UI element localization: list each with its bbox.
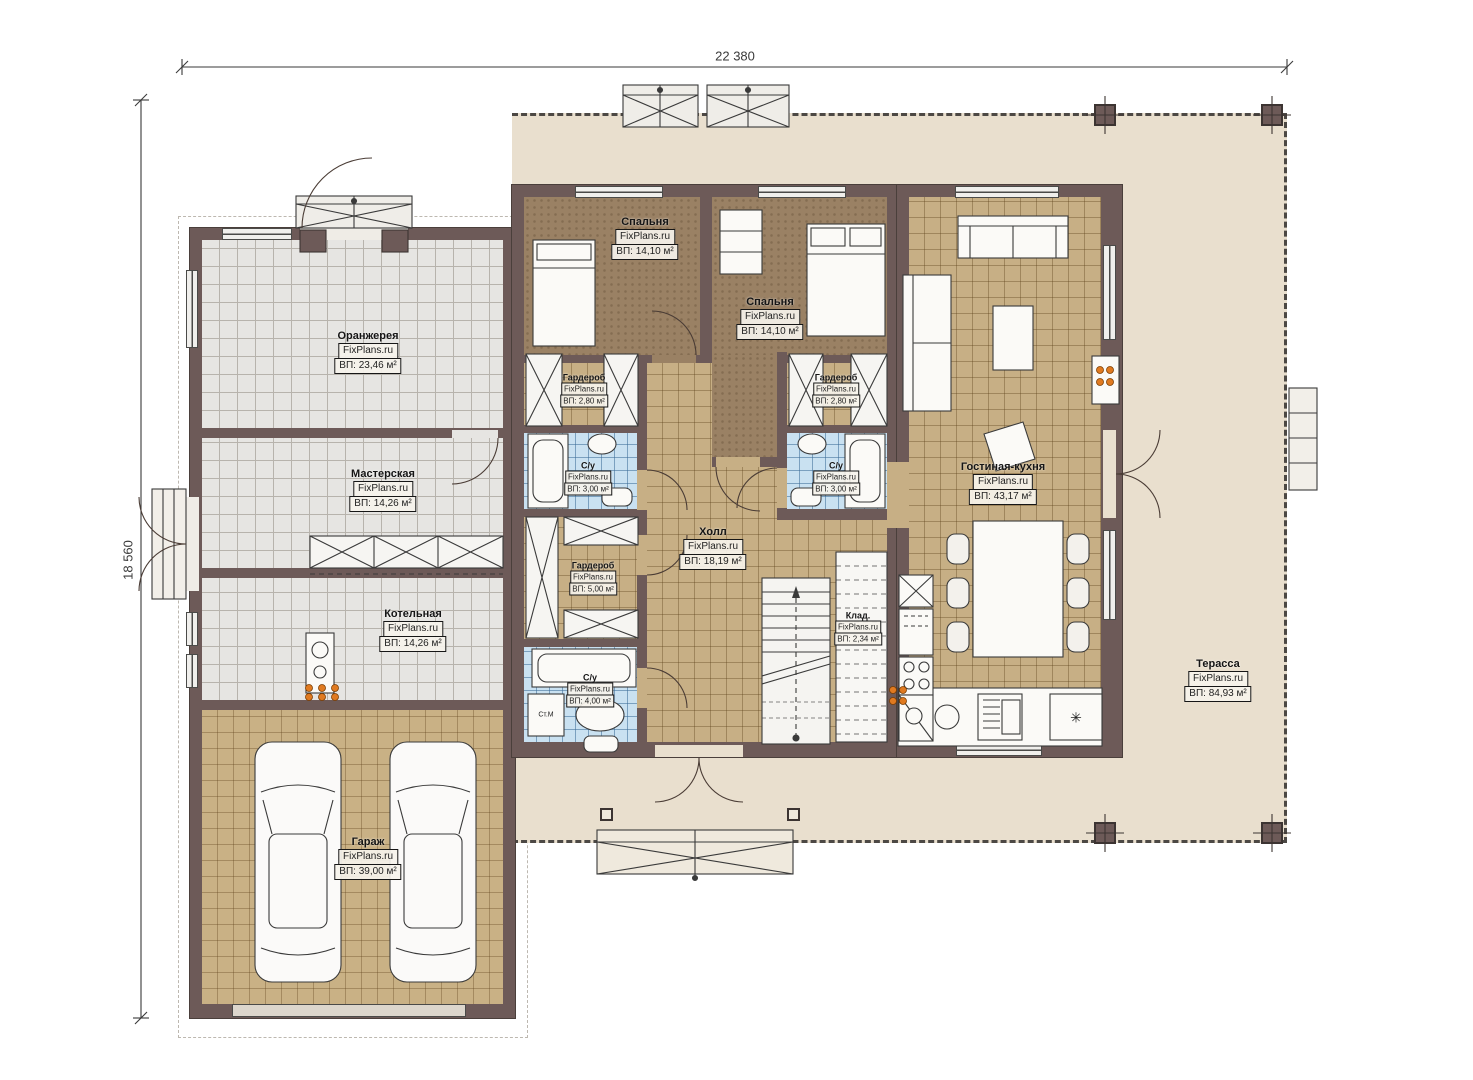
room-label-garage: Гараж FixPlans.ru ВП: 39,00 м² bbox=[334, 836, 401, 880]
window bbox=[186, 270, 198, 348]
room-area: ВП: 14,26 м² bbox=[379, 636, 446, 652]
room-label-living: Гостиная-кухня FixPlans.ru ВП: 43,17 м² bbox=[961, 461, 1045, 505]
room-label-hall: Холл FixPlans.ru ВП: 18,19 м² bbox=[679, 526, 746, 570]
watermark: FixPlans.ru bbox=[353, 481, 413, 497]
watermark: FixPlans.ru bbox=[683, 539, 743, 555]
room-label-bath2: С/у FixPlans.ru ВП: 3,00 м² bbox=[812, 461, 860, 496]
wall bbox=[524, 509, 637, 517]
terrace-column bbox=[1261, 822, 1283, 844]
hall-living-passage bbox=[887, 462, 909, 528]
watermark: FixPlans.ru bbox=[338, 343, 398, 359]
window bbox=[955, 186, 1059, 198]
terrace-column bbox=[1094, 822, 1116, 844]
bedroom2-floor-ext bbox=[712, 355, 777, 457]
window bbox=[186, 612, 198, 646]
room-area: ВП: 2,80 м² bbox=[560, 395, 608, 408]
room-area: ВП: 4,00 м² bbox=[566, 695, 614, 708]
window bbox=[1103, 530, 1116, 620]
wall bbox=[787, 425, 887, 433]
boiler-floor bbox=[202, 578, 503, 700]
watermark: FixPlans.ru bbox=[740, 309, 800, 325]
door-gap bbox=[637, 668, 647, 708]
wall bbox=[524, 425, 637, 433]
room-label-workshop: Мастерская FixPlans.ru ВП: 14,26 м² bbox=[349, 468, 416, 512]
room-area: ВП: 14,26 м² bbox=[349, 496, 416, 512]
room-label-storage: Клад. FixPlans.ru ВП: 2,34 м² bbox=[834, 611, 882, 646]
window bbox=[758, 186, 846, 198]
window bbox=[575, 186, 663, 198]
room-area: ВП: 39,00 м² bbox=[334, 864, 401, 880]
room-area: ВП: 5,00 м² bbox=[569, 583, 617, 596]
window bbox=[1103, 245, 1116, 340]
room-area: ВП: 2,34 м² bbox=[834, 633, 882, 646]
fridge-icon: ✳ bbox=[1070, 710, 1082, 727]
orangery-entrance-gap bbox=[300, 228, 408, 240]
door-gap bbox=[716, 457, 760, 467]
main-entrance-gap bbox=[655, 745, 743, 757]
wall bbox=[777, 509, 887, 520]
room-area: ВП: 23,46 м² bbox=[334, 358, 401, 374]
garage-door-gap bbox=[232, 1004, 466, 1017]
room-label-terrace: Терасса FixPlans.ru ВП: 84,93 м² bbox=[1184, 658, 1251, 702]
watermark: FixPlans.ru bbox=[338, 849, 398, 865]
watermark: FixPlans.ru bbox=[615, 229, 675, 245]
room-label-orangery: Оранжерея FixPlans.ru ВП: 23,46 м² bbox=[334, 330, 401, 374]
dimension-height-label: 18 560 bbox=[121, 540, 136, 580]
room-area: ВП: 43,17 м² bbox=[969, 489, 1036, 505]
room-label-wardrobe2: Гардероб FixPlans.ru ВП: 2,80 м² bbox=[812, 373, 860, 408]
window bbox=[222, 228, 292, 240]
room-label-wardrobe3: Гардероб FixPlans.ru ВП: 5,00 м² bbox=[569, 561, 617, 596]
room-area: ВП: 14,10 м² bbox=[736, 324, 803, 340]
room-label-bedroom2: Спальня FixPlans.ru ВП: 14,10 м² bbox=[736, 296, 803, 340]
door-gap bbox=[452, 430, 498, 438]
room-label-bedroom1: Спальня FixPlans.ru ВП: 14,10 м² bbox=[611, 216, 678, 260]
dimension-width-label: 22 380 bbox=[715, 49, 755, 64]
room-label-bath3: С/у FixPlans.ru ВП: 4,00 м² bbox=[566, 673, 614, 708]
room-area: ВП: 2,80 м² bbox=[812, 395, 860, 408]
watermark: FixPlans.ru bbox=[973, 474, 1033, 490]
washing-machine-label: Ст.М bbox=[538, 712, 553, 719]
terrace-steps-icon bbox=[1289, 388, 1317, 490]
wall bbox=[524, 639, 637, 647]
watermark: FixPlans.ru bbox=[383, 621, 443, 637]
room-label-boiler: Котельная FixPlans.ru ВП: 14,26 м² bbox=[379, 608, 446, 652]
terrace-column bbox=[1094, 104, 1116, 126]
terrace-column bbox=[1261, 104, 1283, 126]
floor-plan: 22 380 18 560 Оранжерея FixPlans.ru ВП: … bbox=[0, 0, 1473, 1080]
room-area: ВП: 3,00 м² bbox=[812, 483, 860, 496]
room-label-bath1: С/у FixPlans.ru ВП: 3,00 м² bbox=[564, 461, 612, 496]
door-gap bbox=[777, 468, 787, 508]
window bbox=[956, 744, 1042, 756]
porch-post bbox=[787, 808, 800, 821]
door-gap bbox=[637, 535, 647, 575]
room-area: ВП: 84,93 м² bbox=[1184, 686, 1251, 702]
watermark: FixPlans.ru bbox=[1188, 671, 1248, 687]
room-area: ВП: 3,00 м² bbox=[564, 483, 612, 496]
window bbox=[186, 654, 198, 688]
room-area: ВП: 14,10 м² bbox=[611, 244, 678, 260]
door-gap bbox=[637, 470, 647, 510]
room-area: ВП: 18,19 м² bbox=[679, 554, 746, 570]
room-label-wardrobe1: Гардероб FixPlans.ru ВП: 2,80 м² bbox=[560, 373, 608, 408]
porch-post bbox=[600, 808, 613, 821]
terrace-door-gap bbox=[1103, 430, 1116, 518]
door-gap bbox=[652, 355, 696, 363]
side-door-gap bbox=[186, 497, 199, 591]
